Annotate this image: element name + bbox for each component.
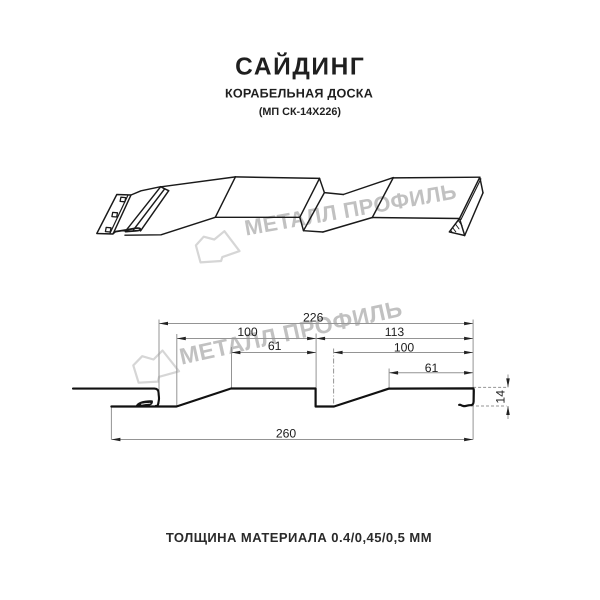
svg-text:61: 61 xyxy=(268,339,282,353)
svg-text:260: 260 xyxy=(276,427,297,441)
svg-text:САЙДИНГ: САЙДИНГ xyxy=(235,52,365,81)
svg-text:100: 100 xyxy=(237,325,258,339)
svg-text:14: 14 xyxy=(494,390,508,404)
svg-text:61: 61 xyxy=(425,361,439,375)
svg-text:ТОЛЩИНА МАТЕРИАЛА 0.4/0,45/0,5: ТОЛЩИНА МАТЕРИАЛА 0.4/0,45/0,5 ММ xyxy=(166,530,432,545)
svg-text:100: 100 xyxy=(394,340,415,354)
svg-text:(МП СК-14Х226): (МП СК-14Х226) xyxy=(259,106,342,118)
svg-text:КОРАБЕЛЬНАЯ ДОСКА: КОРАБЕЛЬНАЯ ДОСКА xyxy=(225,87,373,101)
svg-text:226: 226 xyxy=(303,311,324,325)
svg-text:113: 113 xyxy=(385,325,405,339)
